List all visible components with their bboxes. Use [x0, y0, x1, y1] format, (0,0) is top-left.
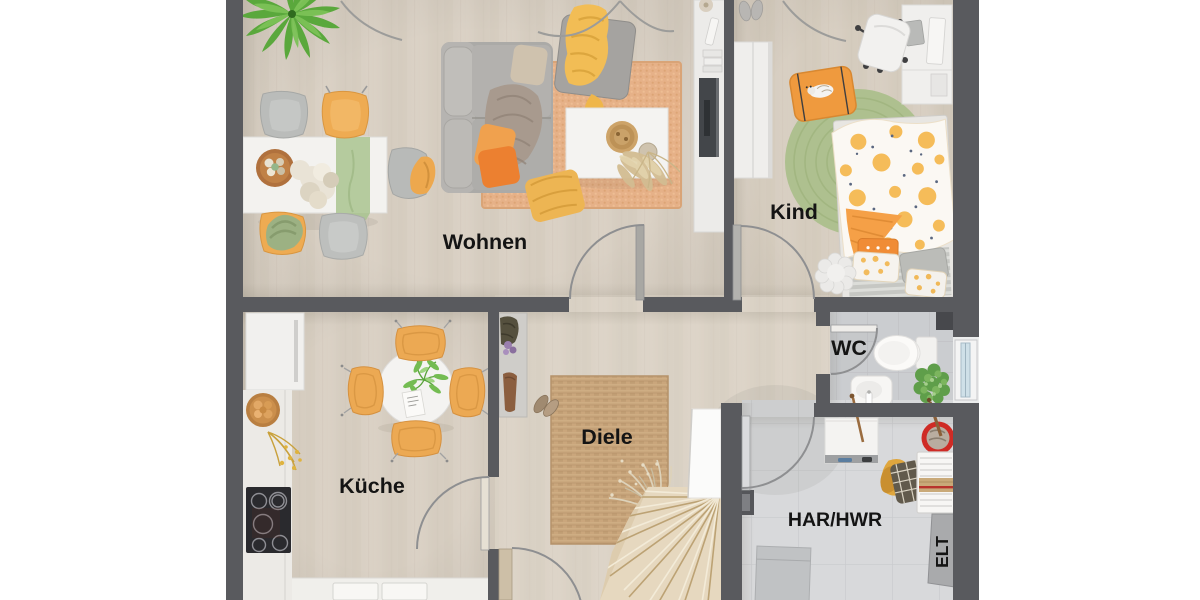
svg-text:Wohnen: Wohnen [443, 230, 527, 254]
svg-text:Kind: Kind [770, 200, 818, 224]
svg-text:HAR/HWR: HAR/HWR [788, 509, 882, 531]
svg-text:Küche: Küche [339, 474, 405, 498]
svg-text:WC: WC [831, 336, 867, 360]
svg-text:Diele: Diele [581, 425, 632, 449]
svg-text:ELT: ELT [932, 536, 952, 568]
